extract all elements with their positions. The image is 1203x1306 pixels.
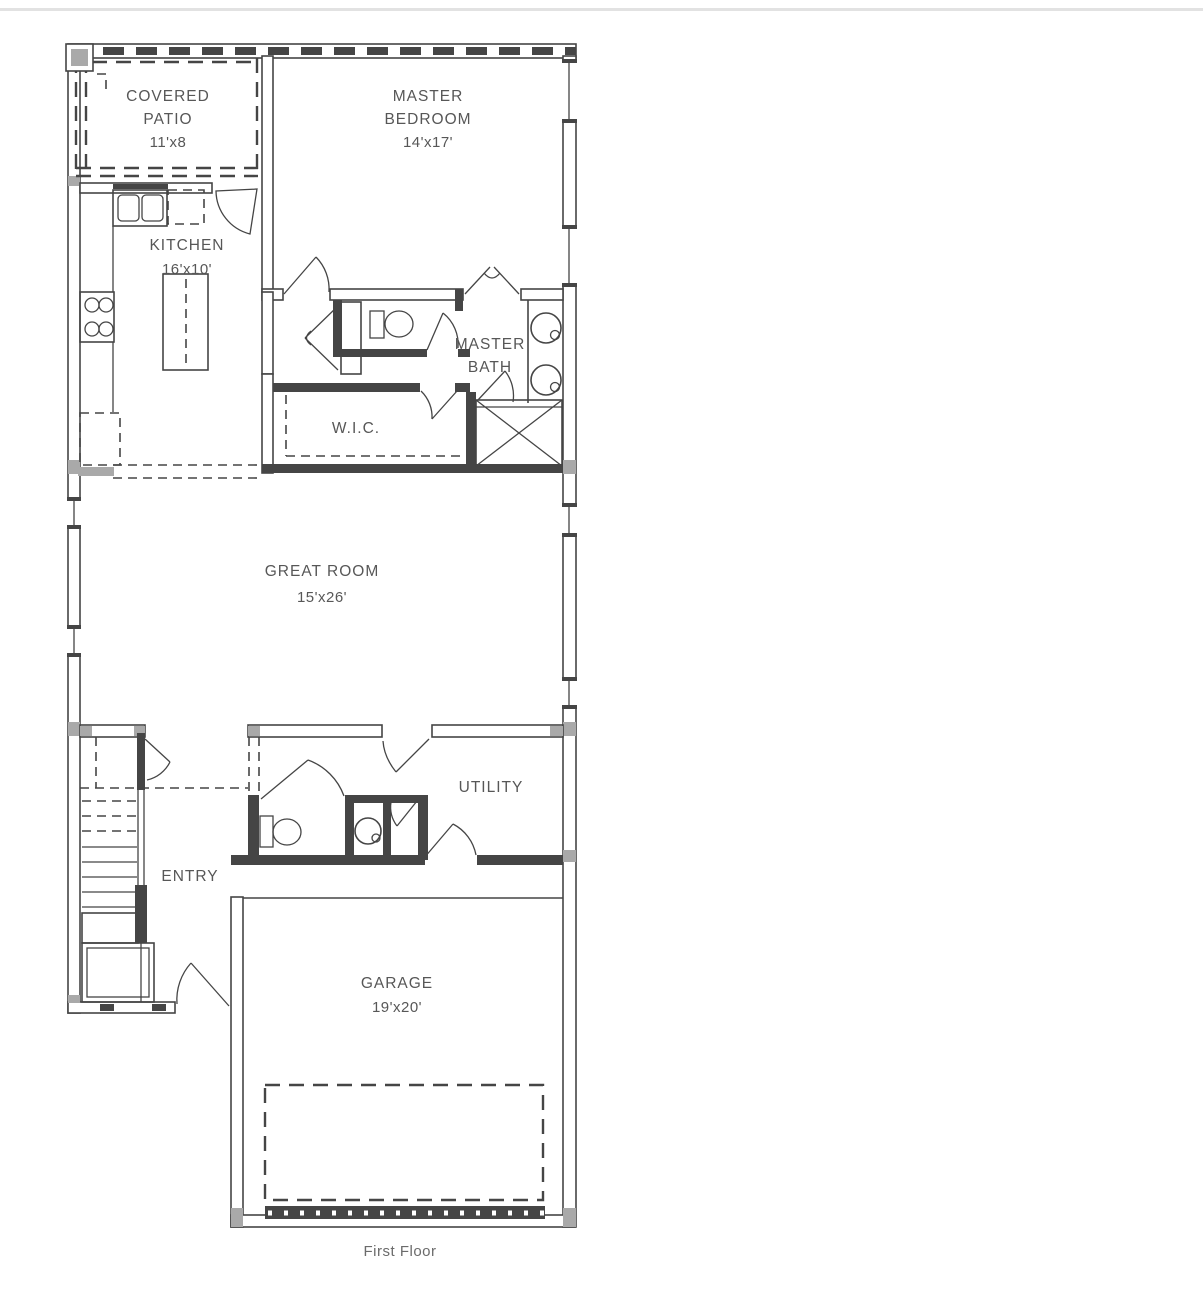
plan-caption: First Floor bbox=[364, 1243, 437, 1260]
front-door-icon bbox=[177, 963, 229, 1006]
room-covered-patio: COVERED PATIO 11'x8 bbox=[66, 44, 258, 178]
powder-west-wall bbox=[248, 795, 259, 860]
patio-label: PATIO bbox=[143, 111, 192, 128]
garage-north-wall bbox=[477, 855, 563, 865]
wall-junction bbox=[68, 995, 80, 1003]
utility-label: UTILITY bbox=[459, 779, 524, 796]
door-swing-icon bbox=[261, 760, 344, 799]
wall-junction bbox=[248, 726, 260, 736]
kitchen-sink-icon bbox=[113, 190, 167, 226]
window-icon bbox=[561, 503, 578, 537]
wall-junction bbox=[563, 460, 576, 474]
bedroom-label: MASTER bbox=[393, 88, 464, 105]
closet-wall bbox=[345, 795, 354, 860]
great-room-south-wall bbox=[248, 725, 382, 737]
garage-label: GARAGE bbox=[361, 975, 433, 992]
wall-junction bbox=[563, 1208, 576, 1227]
dishwasher-icon bbox=[168, 190, 204, 224]
bath-label: MASTER bbox=[455, 336, 526, 353]
wall-junction bbox=[550, 726, 563, 736]
garage-door-icon bbox=[265, 1206, 545, 1219]
toilet-icon bbox=[370, 311, 413, 338]
refrigerator-icon bbox=[80, 413, 120, 465]
room-kitchen: KITCHEN 16'x10' bbox=[78, 183, 258, 478]
window-icon bbox=[66, 497, 82, 529]
shower-icon bbox=[466, 371, 562, 473]
door-swing-icon bbox=[383, 739, 429, 772]
bedroom-west-wall bbox=[262, 56, 273, 292]
great-room-label: GREAT ROOM bbox=[265, 563, 380, 580]
wc-south-wall bbox=[333, 349, 427, 357]
wall-junction bbox=[563, 850, 576, 862]
door-swing-icon bbox=[427, 313, 458, 350]
floor-plan-page: COVERED PATIO 11'x8 MASTER BEDROOM 14'x1… bbox=[0, 0, 1203, 1306]
window-icon bbox=[561, 677, 578, 709]
great-room-dims: 15'x26' bbox=[297, 589, 347, 606]
kitchen-label: KITCHEN bbox=[149, 237, 224, 254]
bedroom-south-wall bbox=[330, 289, 463, 300]
wall-junction bbox=[68, 722, 80, 736]
garage-door-dashed-outline bbox=[265, 1085, 543, 1200]
wic-north-wall bbox=[455, 383, 470, 392]
vanity-sinks-icon bbox=[528, 300, 561, 403]
wc-west-wall bbox=[333, 300, 342, 357]
kitchen-island-icon bbox=[163, 274, 208, 370]
door-jamb bbox=[418, 848, 425, 865]
hall-closets bbox=[248, 737, 428, 860]
door-swing-icon bbox=[284, 257, 329, 294]
stove-icon bbox=[80, 292, 114, 342]
scan-edge-line bbox=[0, 8, 1203, 11]
floor-plan-drawing: COVERED PATIO 11'x8 MASTER BEDROOM 14'x1… bbox=[0, 0, 1203, 1306]
bath-label: BATH bbox=[468, 359, 512, 376]
kitchen-dims: 16'x10' bbox=[162, 261, 212, 278]
wall-junction bbox=[231, 1208, 243, 1227]
window-icon bbox=[561, 59, 578, 123]
garage-dims: 19'x20' bbox=[372, 999, 422, 1016]
stair-rail bbox=[135, 778, 147, 943]
room-great-room: GREAT ROOM 15'x26' bbox=[80, 563, 563, 737]
room-master-bedroom: MASTER BEDROOM 14'x17' bbox=[262, 56, 563, 311]
stair-treads bbox=[82, 801, 137, 907]
door-swing-icon bbox=[216, 189, 257, 234]
garage-north-wall bbox=[231, 855, 425, 865]
room-wic: W.I.C. bbox=[262, 374, 563, 473]
wic-north-wall bbox=[273, 383, 420, 392]
porch-pilaster bbox=[100, 1004, 114, 1011]
door-jamb bbox=[455, 289, 463, 311]
bedroom-label: BEDROOM bbox=[384, 111, 471, 128]
patio-dims: 11'x8 bbox=[150, 134, 187, 151]
wic-west-wall bbox=[262, 374, 273, 473]
window-icon bbox=[66, 625, 82, 657]
window-icon bbox=[561, 225, 578, 287]
toilet-icon bbox=[260, 816, 301, 847]
bedroom-south-wall bbox=[521, 289, 563, 300]
door-swing-icon bbox=[424, 824, 476, 858]
bedroom-dims: 14'x17' bbox=[403, 134, 453, 151]
pantry-closet bbox=[262, 292, 361, 374]
patio-label: COVERED bbox=[126, 88, 210, 105]
room-entry: ENTRY bbox=[80, 733, 248, 1006]
room-garage: GARAGE 19'x20' bbox=[231, 848, 563, 1200]
patio-column-dash bbox=[97, 74, 106, 90]
entry-label: ENTRY bbox=[161, 868, 218, 885]
porch-pilaster bbox=[152, 1004, 166, 1011]
door-swing-icon bbox=[421, 391, 457, 419]
closet-wall bbox=[383, 795, 391, 860]
wall-junction bbox=[563, 722, 576, 736]
patio-column-icon bbox=[66, 44, 93, 71]
great-room-south-wall bbox=[432, 725, 563, 737]
exterior-walls bbox=[66, 44, 578, 1227]
kitchen-window-icon bbox=[113, 184, 168, 189]
wall-junction bbox=[68, 176, 80, 186]
pantry-jamb bbox=[341, 302, 361, 374]
wall-junction bbox=[78, 467, 114, 476]
water-heater-icon bbox=[355, 818, 381, 844]
double-door-icon bbox=[465, 267, 519, 294]
door-swing-icon bbox=[145, 739, 170, 780]
wall-junction bbox=[80, 726, 92, 736]
wic-label: W.I.C. bbox=[332, 420, 380, 437]
door-swing-icon bbox=[391, 801, 417, 826]
pantry-jamb bbox=[262, 292, 273, 374]
garage-left-wall bbox=[231, 897, 243, 1227]
left-wall bbox=[68, 56, 80, 1013]
